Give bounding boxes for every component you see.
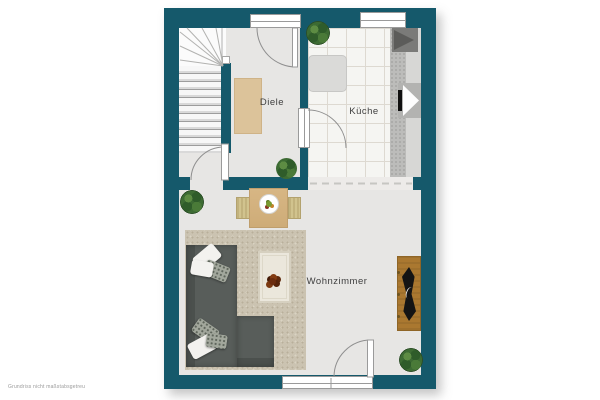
wohnzimmer-window-terrace-door <box>282 376 373 389</box>
kueche-wohnzimmer-threshold <box>308 177 413 190</box>
footer-note: Grundriss nicht maßstabsgetreu <box>8 384 85 390</box>
room-label-wohnzimmer: Wohnzimmer <box>300 276 374 287</box>
diele-kueche-door-frame <box>298 108 310 148</box>
pillow <box>205 333 228 350</box>
kueche-window <box>360 12 406 28</box>
plant-icon-wohnzimmer-right <box>399 348 423 372</box>
staircase-winder <box>179 28 226 66</box>
fruit-icon <box>266 201 272 207</box>
coffee-table <box>258 251 291 303</box>
kitchen-table <box>308 55 347 92</box>
wall-diele-kueche <box>300 28 308 177</box>
plant-icon-diele <box>276 158 297 179</box>
knob-icon <box>397 293 400 296</box>
fruit-bowl <box>259 194 279 214</box>
wall-stub-right <box>413 177 421 190</box>
knob-icon <box>397 315 400 318</box>
plant-icon-kueche <box>306 21 330 45</box>
corner-sofa-bottom <box>237 316 274 367</box>
knob-icon <box>397 271 400 274</box>
room-label-kueche: Küche <box>339 106 389 117</box>
dining-chair-left <box>236 197 250 219</box>
plan-outline <box>164 8 436 389</box>
kitchen-appliance-icon <box>392 28 418 52</box>
table-ornament <box>269 278 276 285</box>
staircase-newel <box>222 56 230 64</box>
room-label-diele: Diele <box>247 97 297 108</box>
diele-wohnzimmer-door-opening <box>190 177 223 190</box>
sideboard <box>397 256 421 331</box>
staircase-wall <box>221 63 231 153</box>
entrance-door-frame <box>250 14 301 28</box>
staircase-run <box>179 66 222 153</box>
plant-icon-wohnzimmer-left <box>180 190 204 214</box>
kitchen-sink-bar <box>398 90 402 111</box>
dining-chair-right <box>288 197 301 219</box>
floor-plan-image: Diele Küche Wohnzimmer Grundriss nicht m… <box>0 0 600 400</box>
